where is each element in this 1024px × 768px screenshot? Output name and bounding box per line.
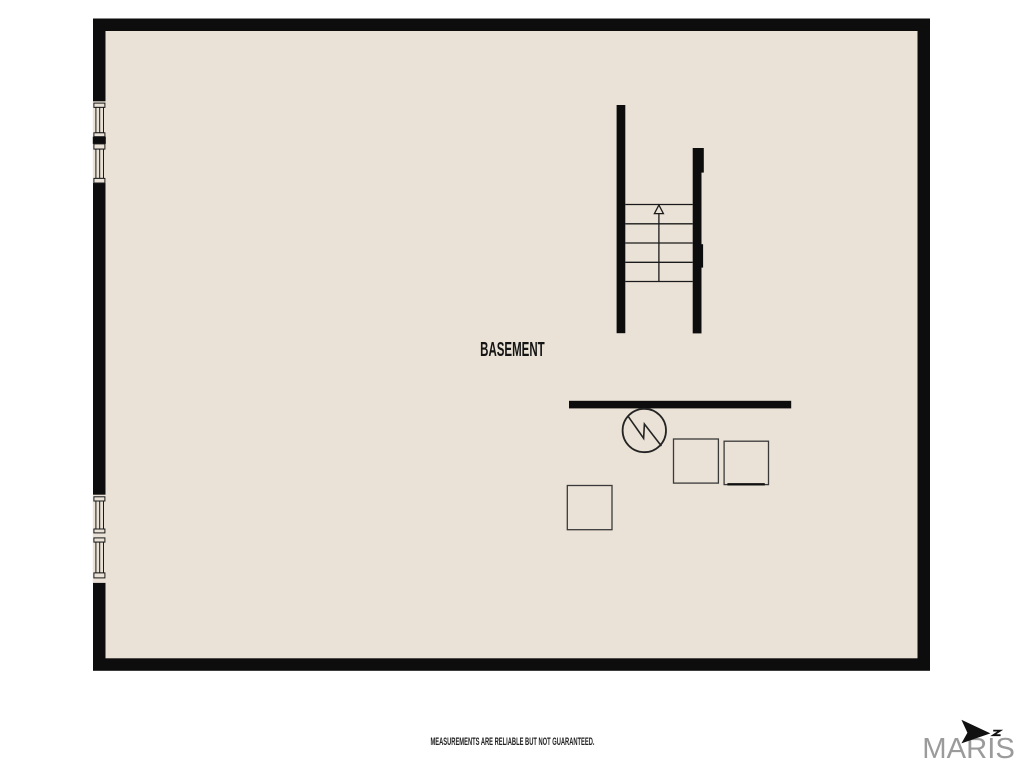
svg-text:MEASUREMENTS ARE RELIABLE BUT: MEASUREMENTS ARE RELIABLE BUT NOT GUARAN…	[431, 736, 595, 748]
svg-text:BASEMENT: BASEMENT	[480, 338, 545, 361]
